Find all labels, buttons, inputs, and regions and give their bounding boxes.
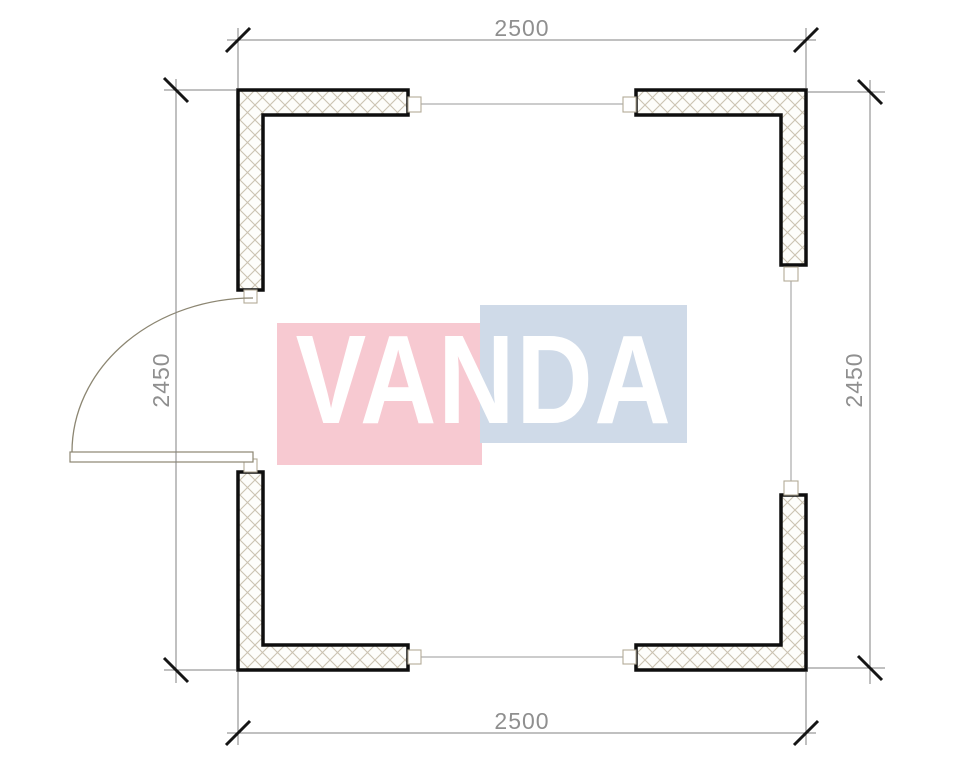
dimension-label-bottom: 2500	[494, 708, 549, 734]
dimension-top: 2500	[226, 15, 818, 88]
wall-top-right	[636, 90, 806, 265]
dimension-label-top: 2500	[494, 15, 549, 41]
door-jamb	[244, 290, 257, 303]
dimension-bottom: 2500	[226, 672, 818, 745]
window-opening-bottom	[408, 650, 636, 664]
window-opening-top	[408, 97, 636, 112]
wall-bottom-left	[238, 472, 408, 670]
dimension-label-right: 2450	[841, 352, 867, 407]
window-jamb	[623, 650, 636, 664]
window-opening-right	[784, 267, 798, 495]
dimension-label-left: 2450	[148, 352, 174, 407]
floor-plan-canvas: 2500 2500 2450 2450	[0, 0, 960, 768]
wall-top-left	[238, 90, 408, 290]
watermark-text: VANDA	[316, 312, 652, 448]
window-jamb	[623, 97, 636, 112]
window-jamb	[784, 267, 798, 281]
window-jamb	[408, 650, 421, 664]
window-jamb	[784, 481, 798, 495]
door-leaf	[70, 452, 253, 462]
window-jamb	[408, 97, 421, 112]
dimension-left: 2450	[148, 78, 236, 683]
dimension-right: 2450	[808, 80, 885, 684]
wall-bottom-right	[636, 495, 806, 670]
